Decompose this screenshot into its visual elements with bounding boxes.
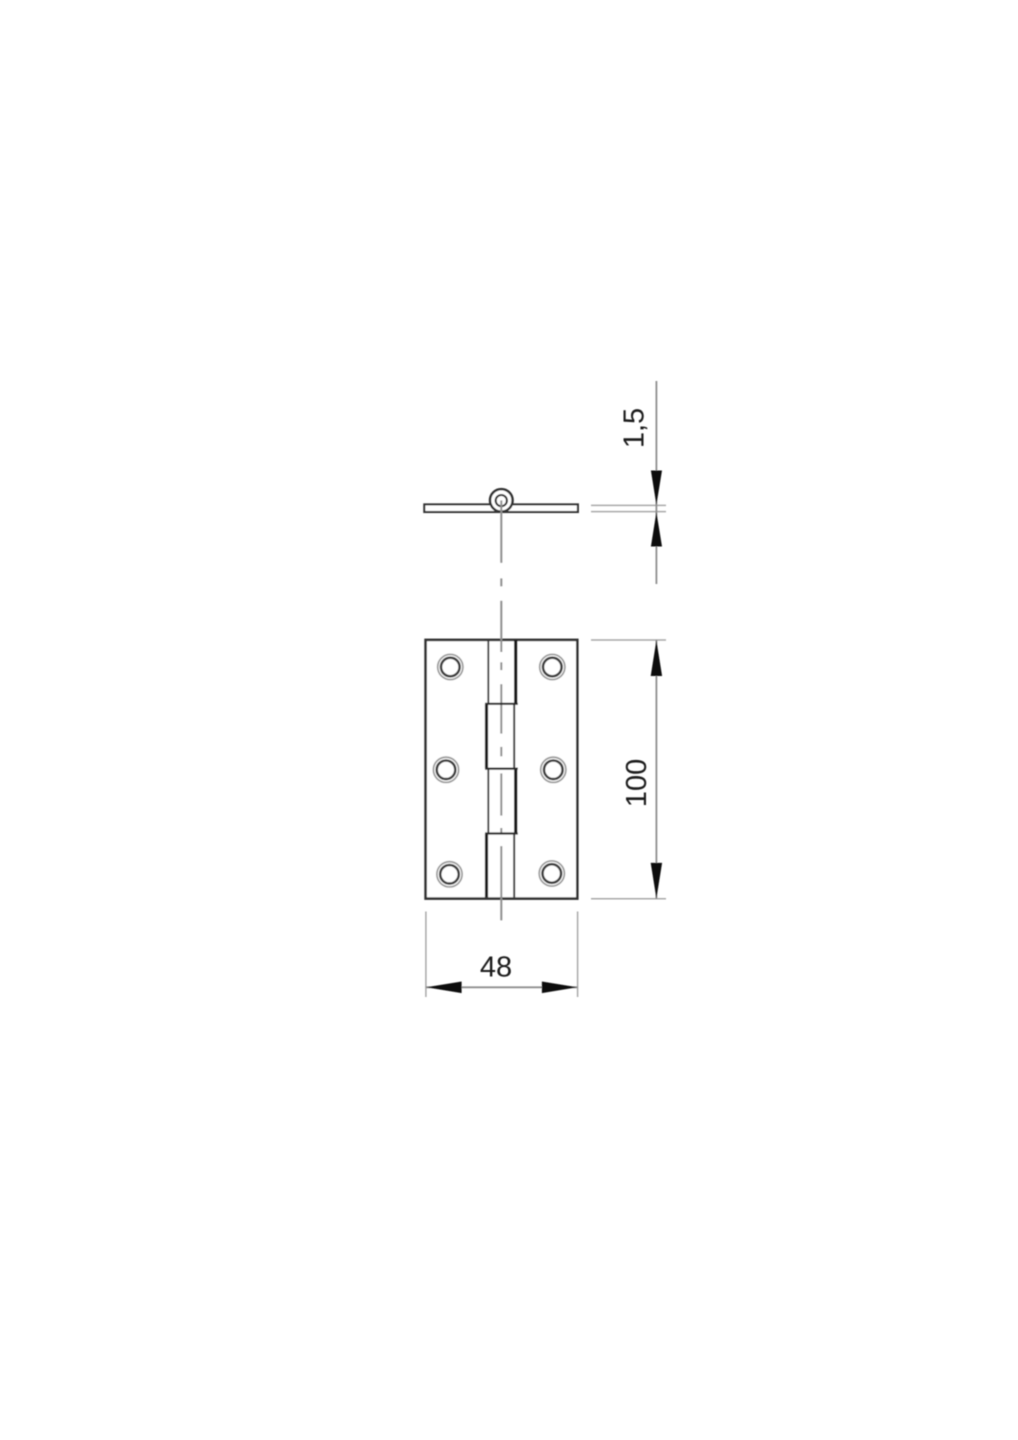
svg-text:1,5: 1,5: [619, 408, 651, 448]
svg-text:48: 48: [480, 952, 512, 984]
svg-text:100: 100: [621, 759, 653, 807]
